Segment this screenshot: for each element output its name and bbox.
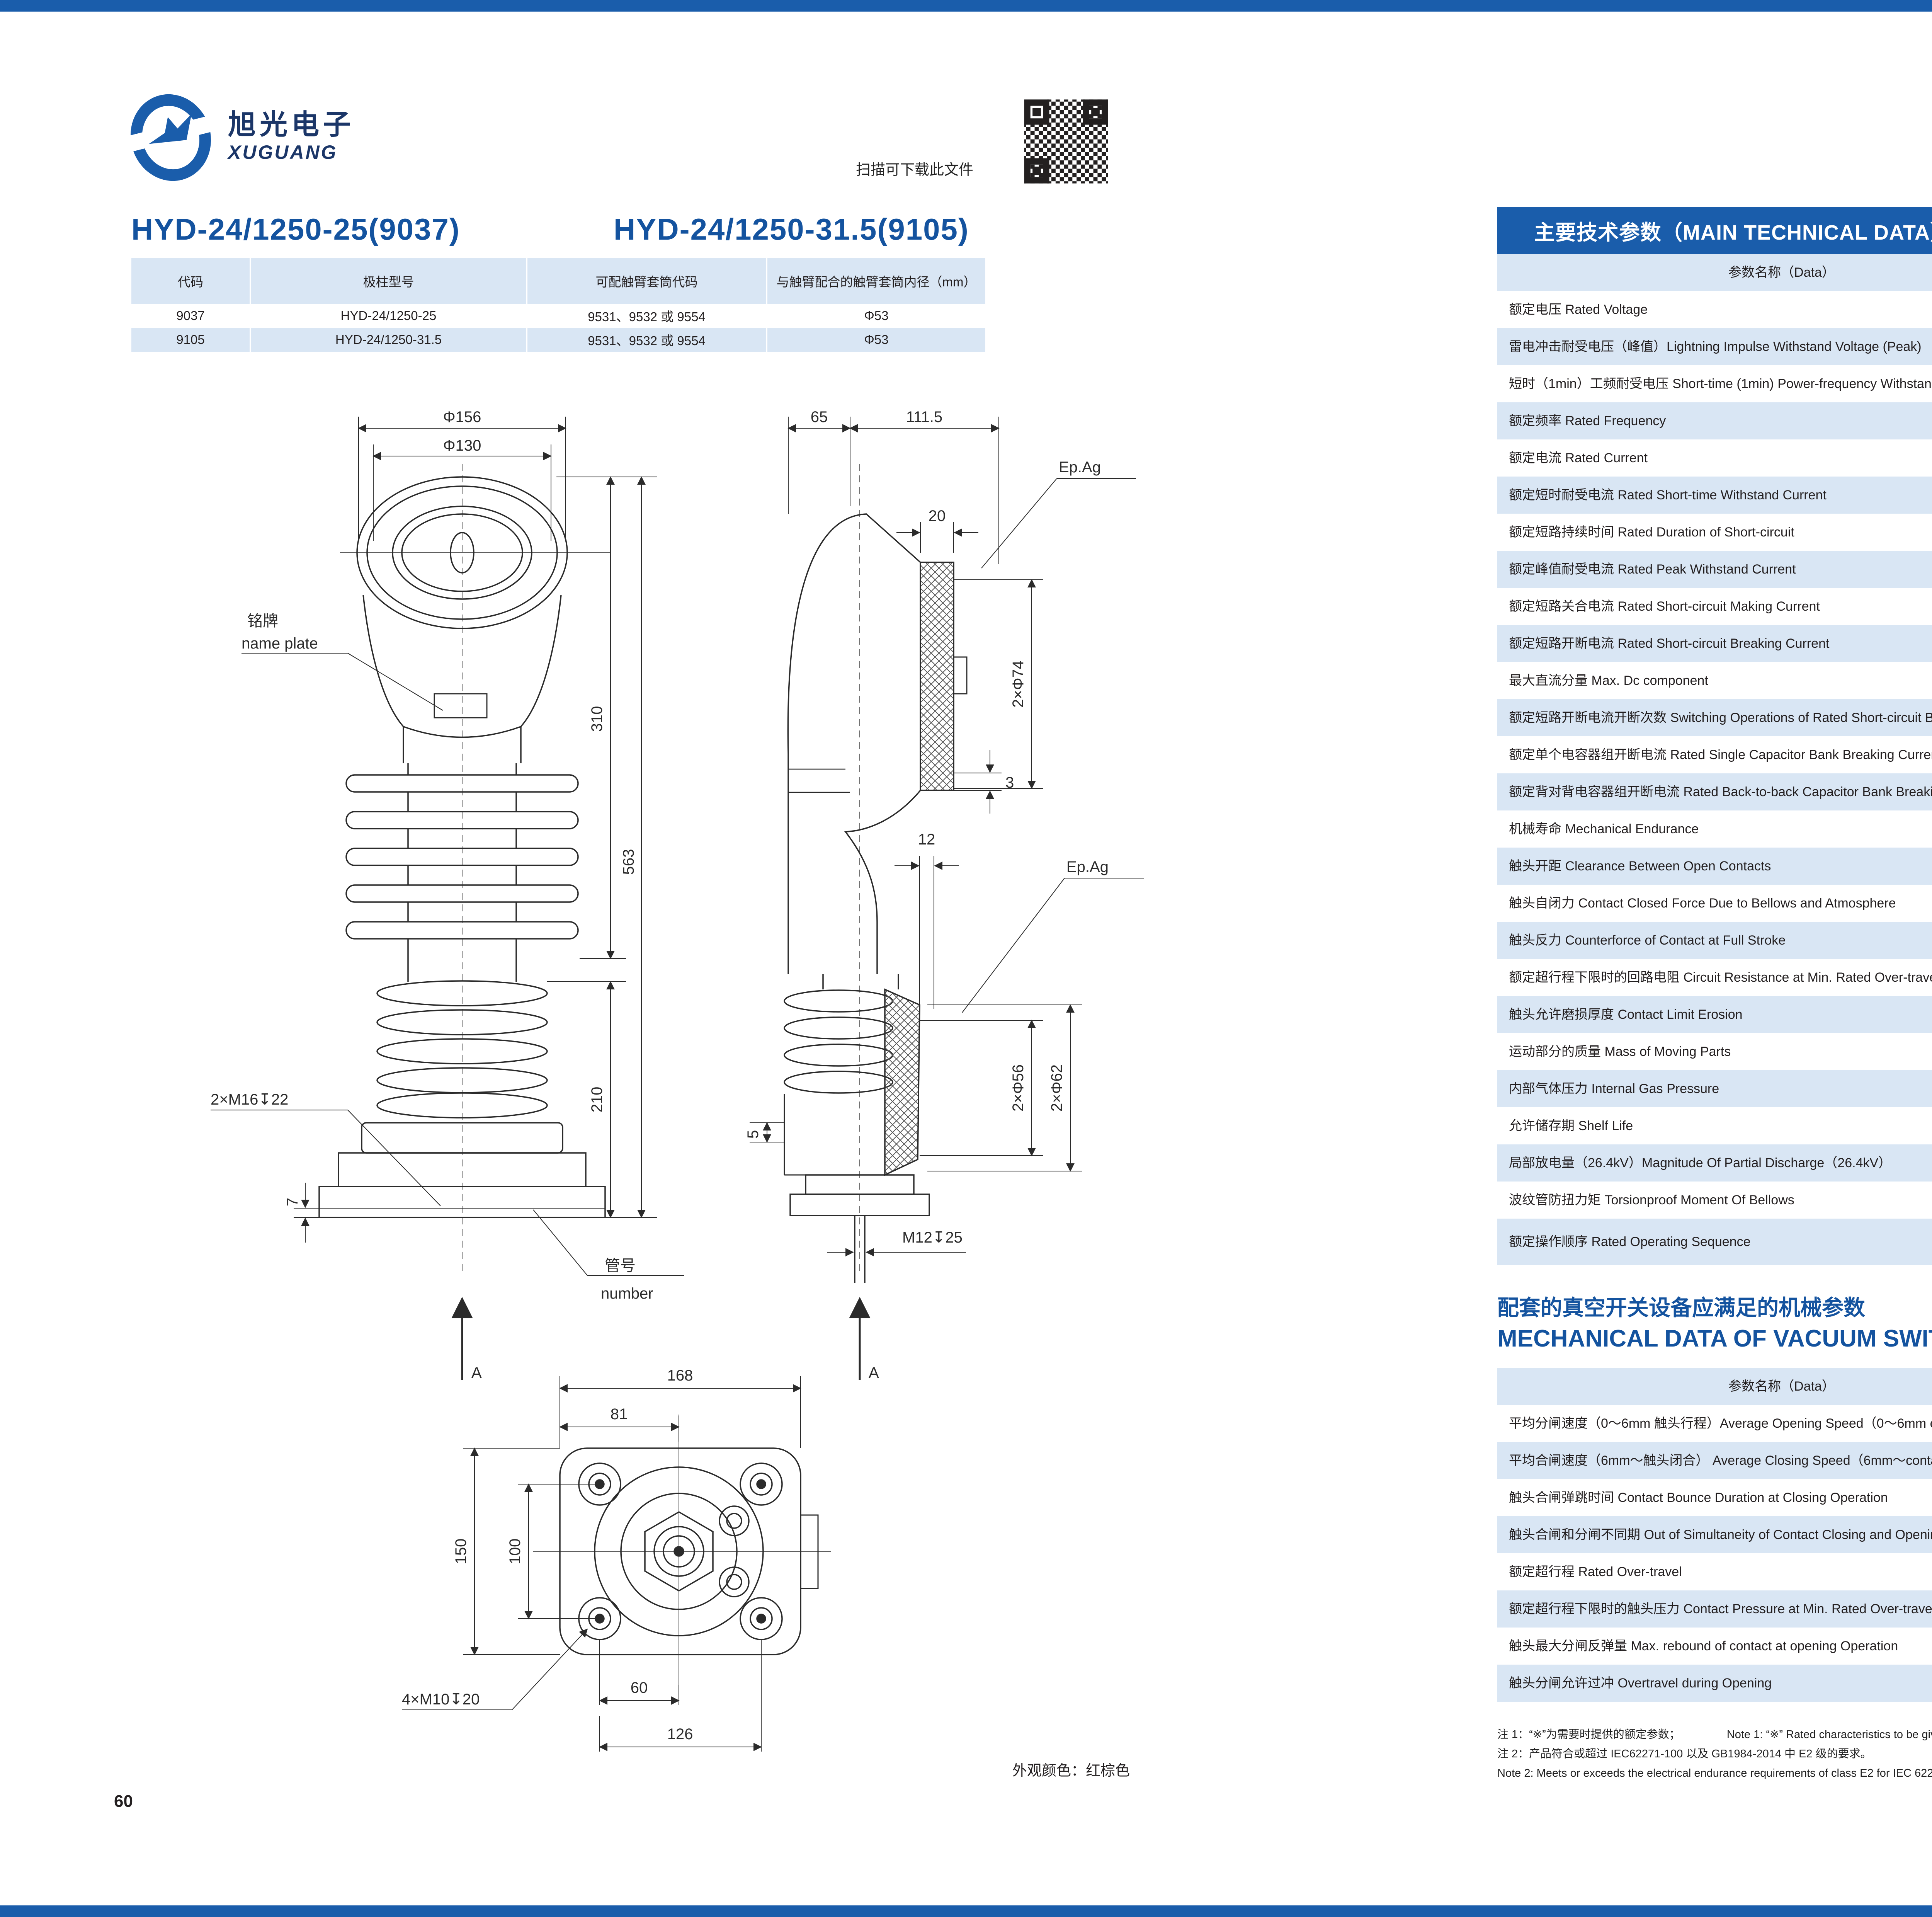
dim-label: 12 — [918, 831, 935, 848]
param-label: 额定短时耐受电流 Rated Short-time Withstand Curr… — [1497, 477, 1932, 514]
table-row: 触头合闸和分闸不同期 Out of Simultaneity of Contac… — [1497, 1516, 1932, 1553]
table-row: 触头允许磨损厚度 Contact Limit Erosionmm3 — [1497, 996, 1932, 1033]
dim-label: Φ130 — [443, 437, 481, 454]
param-label: 平均分闸速度（0～6mm 触头行程）Average Opening Speed（… — [1497, 1405, 1932, 1442]
dim-label: 20 — [929, 507, 946, 524]
nameplate-label-en: name plate — [241, 635, 318, 652]
right-page-content: 主要技术参数（MAIN TECHNICAL DATA） 参数名称（Data） 单… — [1497, 207, 1932, 1783]
nameplate-label-cn: 铭牌 — [247, 613, 278, 630]
main-technical-table: 参数名称（Data） 单位 (Unit) 数值（Value） 额定电压 Rate… — [1497, 254, 1932, 1265]
dim-label: 2×Φ62 — [1048, 1064, 1065, 1112]
logo-en: XUGUANG — [228, 143, 355, 162]
note-line-1: 注 1：“※”为需要时提供的额定参数；Note 1: “※” Rated cha… — [1497, 1725, 1932, 1744]
plating-label: Ep.Ag — [1066, 858, 1109, 875]
table-row: 额定短路持续时间 Rated Duration of Short-circuit… — [1497, 514, 1932, 551]
param-label: 额定频率 Rated Frequency — [1497, 402, 1932, 439]
technical-drawing: Φ156 Φ130 铭牌 name plate 2×M16↧22 310 563… — [131, 386, 1221, 1797]
table-row: 额定单个电容器组开断电流 Rated Single Capacitor Bank… — [1497, 736, 1932, 773]
table-row: 额定短时耐受电流 Rated Short-time Withstand Curr… — [1497, 477, 1932, 514]
col-header: 极柱型号 — [251, 258, 527, 304]
bottom-band — [0, 1905, 1932, 1917]
appearance-color-note: 外观颜色：红棕色 — [1012, 1759, 1130, 1780]
param-label: 额定背对背电容器组开断电流 Rated Back-to-back Capacit… — [1497, 773, 1932, 810]
col-header: 可配触臂套筒代码 — [527, 258, 767, 304]
param-label: 平均合闸速度（6mm～触头闭合） Average Closing Speed（6… — [1497, 1442, 1932, 1479]
cell: 9105 — [131, 328, 251, 352]
table-row: 平均分闸速度（0～6mm 触头行程）Average Opening Speed（… — [1497, 1405, 1932, 1442]
param-label: 触头自闭力 Contact Closed Force Due to Bellow… — [1497, 885, 1932, 922]
table-row: 9105 HYD-24/1250-31.5 9531、9532 或 9554 Φ… — [131, 328, 985, 352]
qr-caption: 扫描可下载此文件 — [856, 158, 973, 179]
thread-label: M12↧25 — [902, 1229, 963, 1246]
param-label: 触头分闸允许过冲 Overtravel during Opening — [1497, 1665, 1932, 1702]
table-row: 运动部分的质量 Mass of Moving Partskg3.6±0.3 — [1497, 1033, 1932, 1070]
page-title-left: HYD-24/1250-25(9037) — [131, 212, 460, 247]
table-row: 9037 HYD-24/1250-25 9531、9532 或 9554 Φ53 — [131, 304, 985, 328]
dim-label: 563 — [620, 849, 637, 875]
param-label: 运动部分的质量 Mass of Moving Parts — [1497, 1033, 1932, 1070]
table-row: 额定短路开断电流 Rated Short-circuit Breaking Cu… — [1497, 625, 1932, 662]
param-label: 额定峰值耐受电流 Rated Peak Withstand Current — [1497, 551, 1932, 588]
compatibility-table: 代码 极柱型号 可配触臂套筒代码 与触臂配合的触臂套筒内径（mm） 9037 H… — [131, 258, 985, 352]
param-label: 额定超行程下限时的触头压力 Contact Pressure at Min. R… — [1497, 1590, 1932, 1628]
table-row: 波纹管防扭力矩 Torsionproof Moment Of BellowsN·… — [1497, 1182, 1932, 1219]
table-row: 额定峰值耐受电流 Rated Peak Withstand CurrentkA6… — [1497, 551, 1932, 588]
param-label: 额定单个电容器组开断电流 Rated Single Capacitor Bank… — [1497, 736, 1932, 773]
plating-label: Ep.Ag — [1059, 459, 1101, 476]
table-header-row: 代码 极柱型号 可配触臂套筒代码 与触臂配合的触臂套筒内径（mm） — [131, 258, 985, 304]
company-logo: 旭光电子 XUGUANG — [128, 92, 355, 181]
dim-label: 81 — [611, 1406, 628, 1423]
param-label: 触头允许磨损厚度 Contact Limit Erosion — [1497, 996, 1932, 1033]
table-row: 最大直流分量 Max. Dc component40% — [1497, 662, 1932, 699]
table-row: 额定短路开断电流开断次数 Switching Operations of Rat… — [1497, 699, 1932, 736]
param-label: 触头最大分闸反弹量 Max. rebound of contact at ope… — [1497, 1628, 1932, 1665]
catalog-spread: 旭光电子 XUGUANG 扫描可下载此文件 HYD-24/1250-25(903… — [0, 0, 1932, 1917]
dim-label: 5 — [745, 1130, 762, 1139]
company-logo-icon — [128, 92, 216, 181]
dim-label: 3 — [1005, 774, 1014, 791]
table-row: 触头合闸弹跳时间 Contact Bounce Duration at Clos… — [1497, 1479, 1932, 1516]
table-row: 局部放电量（26.4kV）Magnitude Of Partial Discha… — [1497, 1144, 1932, 1182]
page-number-left: 60 — [114, 1792, 133, 1811]
dim-label: 60 — [631, 1679, 648, 1696]
cell: 9037 — [131, 304, 251, 328]
dim-label: 210 — [588, 1087, 605, 1113]
view-label: A — [869, 1364, 879, 1381]
dim-label: 7 — [284, 1198, 301, 1206]
cell: 9531、9532 或 9554 — [527, 328, 767, 352]
view-label: A — [471, 1364, 482, 1381]
cell: 9531、9532 或 9554 — [527, 304, 767, 328]
dim-label: 150 — [452, 1539, 469, 1565]
col-header: 代码 — [131, 258, 251, 304]
cell: HYD-24/1250-25 — [251, 304, 527, 328]
table-row: 额定短路关合电流 Rated Short-circuit Making Curr… — [1497, 588, 1932, 625]
table-row: 额定超行程 Rated Over-travelmm4±1 — [1497, 1553, 1932, 1590]
param-label: 额定电流 Rated Current — [1497, 439, 1932, 477]
param-label: 额定操作顺序 Rated Operating Sequence — [1497, 1219, 1932, 1265]
cell: Φ53 — [767, 328, 985, 352]
footnotes: 注 1：“※”为需要时提供的额定参数；Note 1: “※” Rated cha… — [1497, 1725, 1932, 1783]
table-row: 雷电冲击耐受电压（峰值）Lightning Impulse Withstand … — [1497, 328, 1932, 365]
dim-label: 168 — [667, 1367, 693, 1384]
param-label: 触头反力 Counterforce of Contact at Full Str… — [1497, 922, 1932, 959]
table-header-row: 参数名称（Data） 单位 (Unit) 数值（Value） — [1497, 254, 1932, 291]
table-row: 额定频率 Rated FrequencyHz50/60 — [1497, 402, 1932, 439]
tube-number-cn: 管号 — [605, 1257, 636, 1274]
dim-label: 65 — [811, 409, 828, 426]
dim-label: 2×Φ74 — [1010, 661, 1027, 708]
thread-label: 2×M16↧22 — [211, 1091, 288, 1108]
table-row: 额定背对背电容器组开断电流 Rated Back-to-back Capacit… — [1497, 773, 1932, 810]
table-row: 额定操作顺序 Rated Operating Sequence分-0.3秒-合分… — [1497, 1219, 1932, 1265]
qr-code — [1022, 97, 1110, 186]
col-header: 参数名称（Data） — [1497, 254, 1932, 291]
table-row: 允许储存期 Shelf Life年 Year20 — [1497, 1107, 1932, 1144]
param-label: 额定超行程下限时的回路电阻 Circuit Resistance at Min.… — [1497, 959, 1932, 996]
param-label: 额定短路关合电流 Rated Short-circuit Making Curr… — [1497, 588, 1932, 625]
param-label: 最大直流分量 Max. Dc component — [1497, 662, 1932, 699]
dim-label: 126 — [667, 1726, 693, 1743]
table-row: 机械寿命 Mechanical Endurance次 Operations100… — [1497, 810, 1932, 848]
page-title-right: HYD-24/1250-31.5(9105) — [614, 212, 969, 247]
param-label: 额定短路开断电流开断次数 Switching Operations of Rat… — [1497, 699, 1932, 736]
mechanical-table: 参数名称（Data） 单位（Unit） 数值（Value） 平均分闸速度（0～6… — [1497, 1368, 1932, 1702]
section-banner: 主要技术参数（MAIN TECHNICAL DATA） — [1497, 207, 1932, 254]
dim-label: 111.5 — [906, 409, 942, 426]
param-label: 额定超行程 Rated Over-travel — [1497, 1553, 1932, 1590]
table-row: 额定超行程下限时的回路电阻 Circuit Resistance at Min.… — [1497, 959, 1932, 996]
table-row: 额定电压 Rated VoltagekV24 — [1497, 291, 1932, 328]
col-header: 与触臂配合的触臂套筒内径（mm） — [767, 258, 985, 304]
note-line-2: 注 2：产品符合或超过 IEC62271-100 以及 GB1984-2014 … — [1497, 1744, 1932, 1764]
table-row: 触头开距 Clearance Between Open Contactsmm13… — [1497, 848, 1932, 885]
dim-label: 2×Φ56 — [1010, 1064, 1027, 1112]
col-header: 参数名称（Data） — [1497, 1368, 1932, 1405]
cell: Φ53 — [767, 304, 985, 328]
param-label: 局部放电量（26.4kV）Magnitude Of Partial Discha… — [1497, 1144, 1932, 1182]
table-row: 触头分闸允许过冲 Overtravel during Openingmm≤ 2 — [1497, 1665, 1932, 1702]
table-row: 额定超行程下限时的触头压力 Contact Pressure at Min. R… — [1497, 1590, 1932, 1628]
param-label: 触头开距 Clearance Between Open Contacts — [1497, 848, 1932, 885]
tube-number-en: number — [601, 1285, 653, 1302]
table-row: 触头自闭力 Contact Closed Force Due to Bellow… — [1497, 885, 1932, 922]
table-row: 短时（1min）工频耐受电压 Short-time (1min) Power-f… — [1497, 365, 1932, 402]
dim-label: 310 — [588, 706, 605, 732]
note-line-3: Note 2: Meets or exceeds the electrical … — [1497, 1764, 1932, 1783]
thread-label: 4×M10↧20 — [402, 1691, 480, 1708]
table-header-row: 参数名称（Data） 单位（Unit） 数值（Value） — [1497, 1368, 1932, 1405]
dim-label: 100 — [507, 1539, 524, 1565]
mech-section-title-cn: 配套的真空开关设备应满足的机械参数 — [1497, 1290, 1932, 1322]
param-label: 机械寿命 Mechanical Endurance — [1497, 810, 1932, 848]
dim-label: Φ156 — [443, 409, 481, 426]
logo-cn: 旭光电子 — [228, 111, 355, 139]
table-row: 触头最大分闸反弹量 Max. rebound of contact at ope… — [1497, 1628, 1932, 1665]
table-row: 平均合闸速度（6mm～触头闭合） Average Closing Speed（6… — [1497, 1442, 1932, 1479]
param-label: 雷电冲击耐受电压（峰值）Lightning Impulse Withstand … — [1497, 328, 1932, 365]
cell: HYD-24/1250-31.5 — [251, 328, 527, 352]
param-label: 额定短路开断电流 Rated Short-circuit Breaking Cu… — [1497, 625, 1932, 662]
param-label: 波纹管防扭力矩 Torsionproof Moment Of Bellows — [1497, 1182, 1932, 1219]
param-label: 触头合闸弹跳时间 Contact Bounce Duration at Clos… — [1497, 1479, 1932, 1516]
mech-section-title-en: MECHANICAL DATA OF VACUUM SWITCH EQUIPPE… — [1497, 1325, 1932, 1352]
param-label: 允许储存期 Shelf Life — [1497, 1107, 1932, 1144]
param-label: 触头合闸和分闸不同期 Out of Simultaneity of Contac… — [1497, 1516, 1932, 1553]
param-label: 额定电压 Rated Voltage — [1497, 291, 1932, 328]
table-row: 额定电流 Rated CurrentA1250 — [1497, 439, 1932, 477]
table-row: 触头反力 Counterforce of Contact at Full Str… — [1497, 922, 1932, 959]
param-label: 额定短路持续时间 Rated Duration of Short-circuit — [1497, 514, 1932, 551]
table-row: 内部气体压力 Internal Gas PressurePa<1.33×10-3 — [1497, 1070, 1932, 1107]
param-label: 内部气体压力 Internal Gas Pressure — [1497, 1070, 1932, 1107]
param-label: 短时（1min）工频耐受电压 Short-time (1min) Power-f… — [1497, 365, 1932, 402]
top-band — [0, 0, 1932, 12]
